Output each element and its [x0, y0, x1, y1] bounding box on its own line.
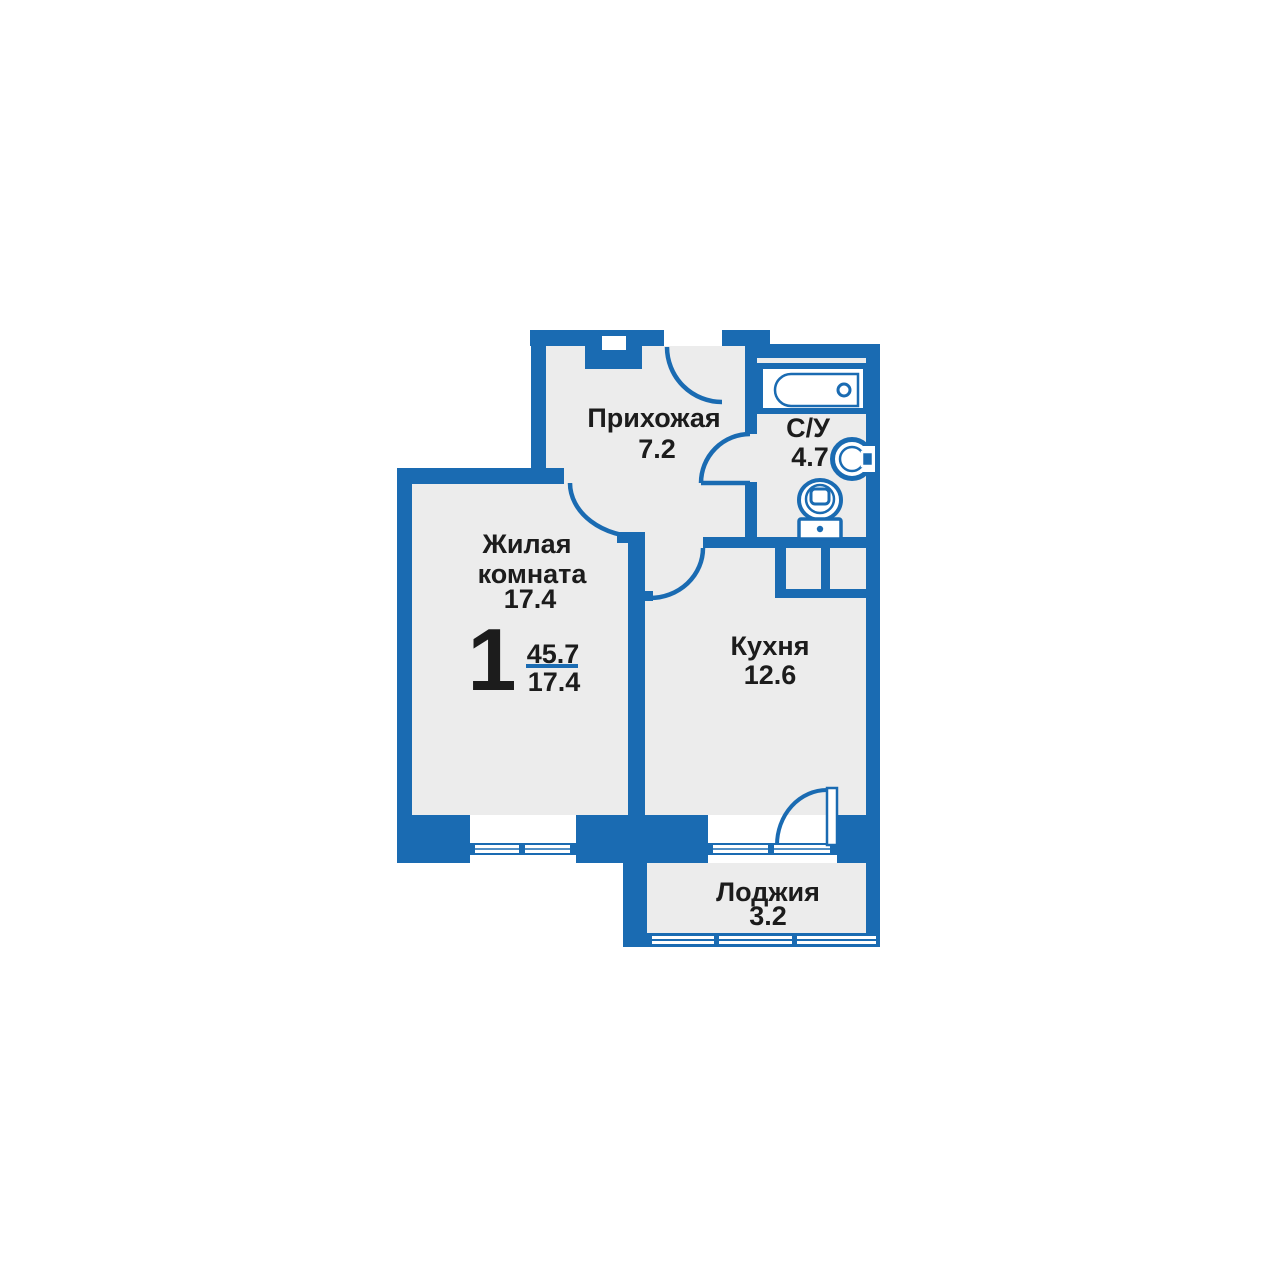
kitchen-label: Кухня — [731, 631, 810, 661]
bathroom-label: С/У — [786, 413, 831, 443]
bathroom-area: 4.7 — [791, 442, 829, 472]
kitchen-door-stub — [645, 591, 653, 601]
loggia-glass-line-2 — [652, 941, 876, 944]
wall-loggia-left — [623, 863, 647, 947]
rooms-count: 1 — [468, 610, 517, 709]
balcony-door-leaf — [827, 788, 837, 845]
hallway-area: 7.2 — [638, 434, 676, 464]
kitchen-area: 12.6 — [744, 660, 797, 690]
living-area-summary: 17.4 — [528, 667, 581, 697]
kitchen-window-tick-mid — [768, 845, 774, 854]
wall-top-left-of-entry — [530, 330, 664, 346]
living-window-recess — [470, 815, 576, 863]
washbasin-tap — [862, 452, 873, 466]
bathtub-icon — [760, 366, 866, 411]
kitchen-window-tick-right — [830, 845, 836, 854]
wall-bathroom-left-lower — [745, 482, 757, 544]
loggia-glazing-divider-2 — [792, 934, 797, 946]
loggia-glass-line-1 — [652, 936, 876, 939]
living-window-tick-right — [570, 845, 576, 854]
toilet-flush-button — [817, 526, 823, 532]
loggia-glazing-divider-1 — [714, 934, 719, 946]
kitchen-window-recess — [708, 815, 837, 863]
washbasin-icon — [833, 440, 876, 479]
loggia-railing — [647, 933, 880, 947]
toilet-icon — [799, 480, 841, 539]
kitchen-window-tick-left — [707, 845, 713, 854]
wall-bathroom-top — [757, 344, 880, 358]
hallway-label: Прихожая — [587, 403, 720, 433]
wall-center-vertical — [628, 532, 645, 863]
living-window-tick-left — [469, 845, 475, 854]
wall-hallway-left — [531, 330, 546, 484]
living-window — [469, 815, 576, 863]
wall-left-outer — [397, 468, 412, 863]
wall-bathroom-left-upper — [745, 344, 757, 434]
shaft-bottom-wall — [775, 589, 873, 598]
wall-niche — [602, 336, 626, 350]
living-window-tick-mid — [519, 845, 525, 854]
wall-kitchen-top — [703, 537, 880, 548]
floor-plan-canvas: Прихожая 7.2 С/У 4.7 Жилая комната 17.4 … — [0, 0, 1280, 1280]
living-label-line1: Жилая — [482, 529, 572, 559]
wall-living-top — [397, 468, 564, 484]
wall-top-right-of-entry — [722, 330, 770, 346]
toilet-seat-box — [811, 489, 829, 504]
loggia-area: 3.2 — [749, 901, 787, 931]
floor-plan-svg: Прихожая 7.2 С/У 4.7 Жилая комната 17.4 … — [0, 0, 1280, 1280]
bathtub-drain — [838, 384, 850, 396]
